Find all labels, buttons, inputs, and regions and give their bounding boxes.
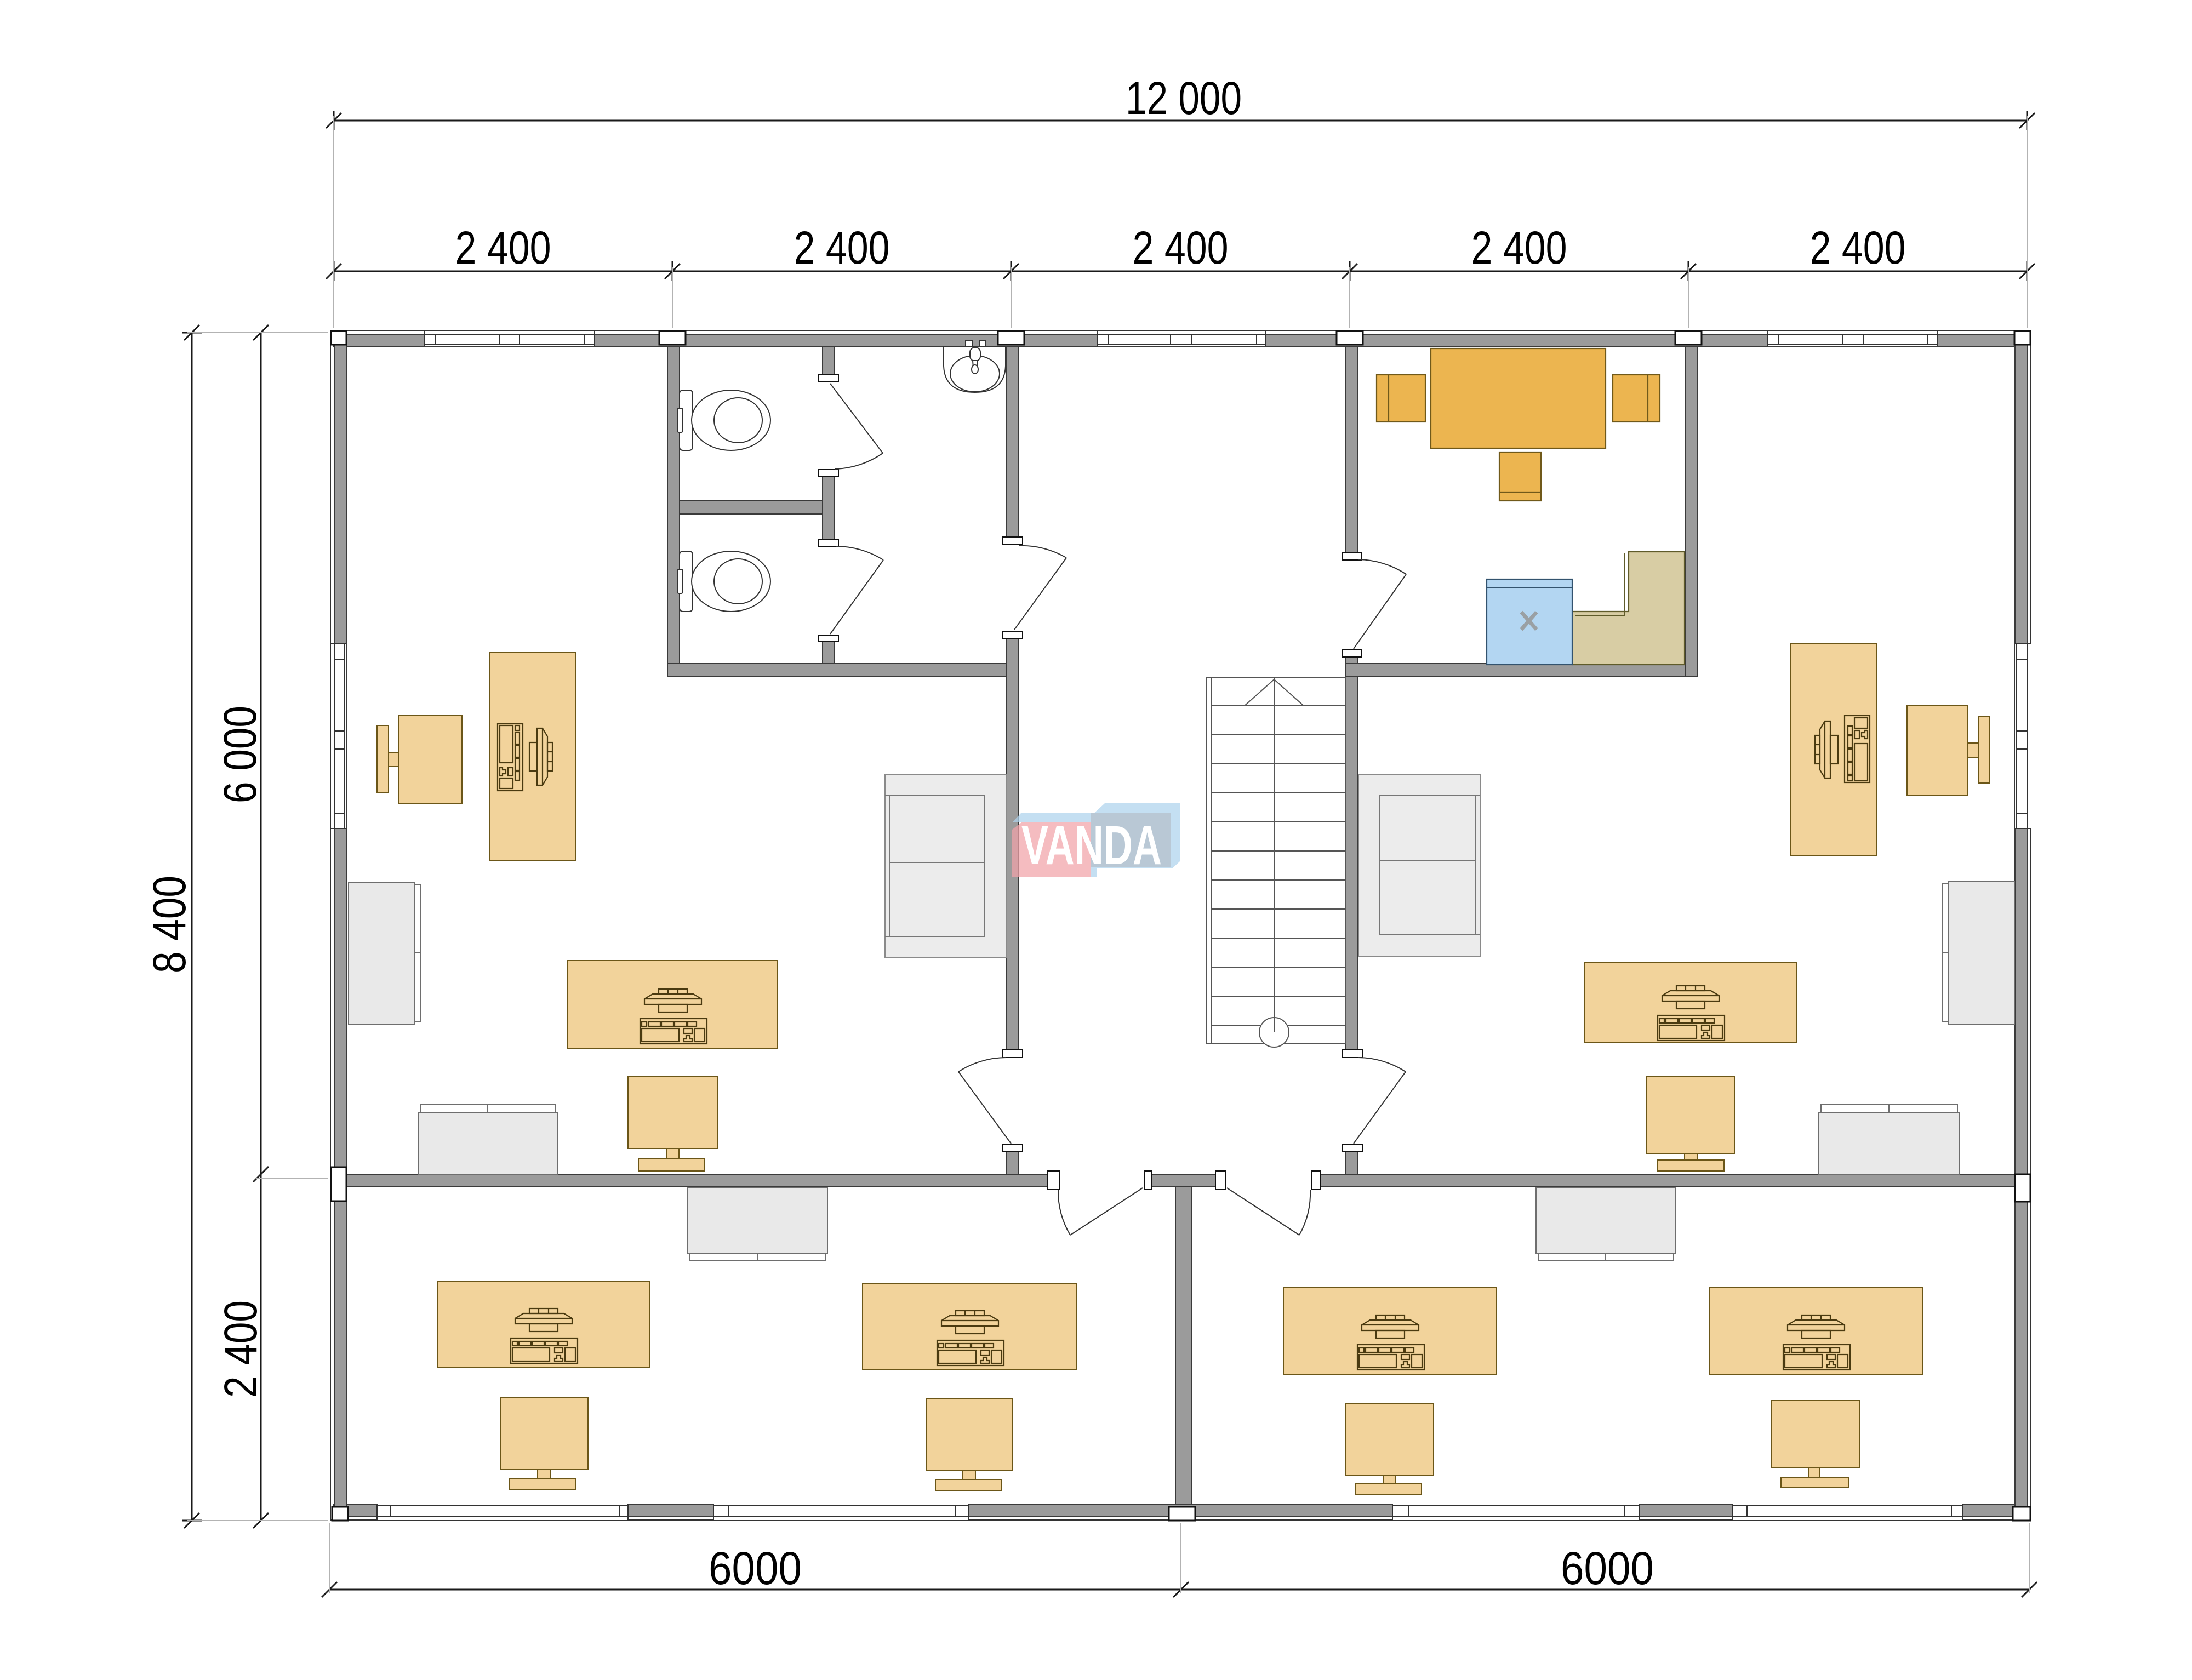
svg-text:2 400: 2 400 — [455, 222, 551, 273]
svg-text:2 400: 2 400 — [1810, 222, 1906, 273]
svg-text:2 400: 2 400 — [215, 1300, 266, 1398]
svg-text:VANDA: VANDA — [1021, 815, 1162, 876]
svg-text:6000: 6000 — [1561, 1542, 1654, 1594]
svg-text:2 400: 2 400 — [1133, 222, 1229, 273]
svg-text:6 000: 6 000 — [214, 706, 266, 803]
svg-text:8 400: 8 400 — [144, 876, 195, 973]
svg-text:2 400: 2 400 — [794, 222, 890, 273]
svg-text:6000: 6000 — [709, 1542, 802, 1594]
svg-text:2 400: 2 400 — [1471, 222, 1567, 273]
svg-text:12 000: 12 000 — [1126, 72, 1242, 124]
